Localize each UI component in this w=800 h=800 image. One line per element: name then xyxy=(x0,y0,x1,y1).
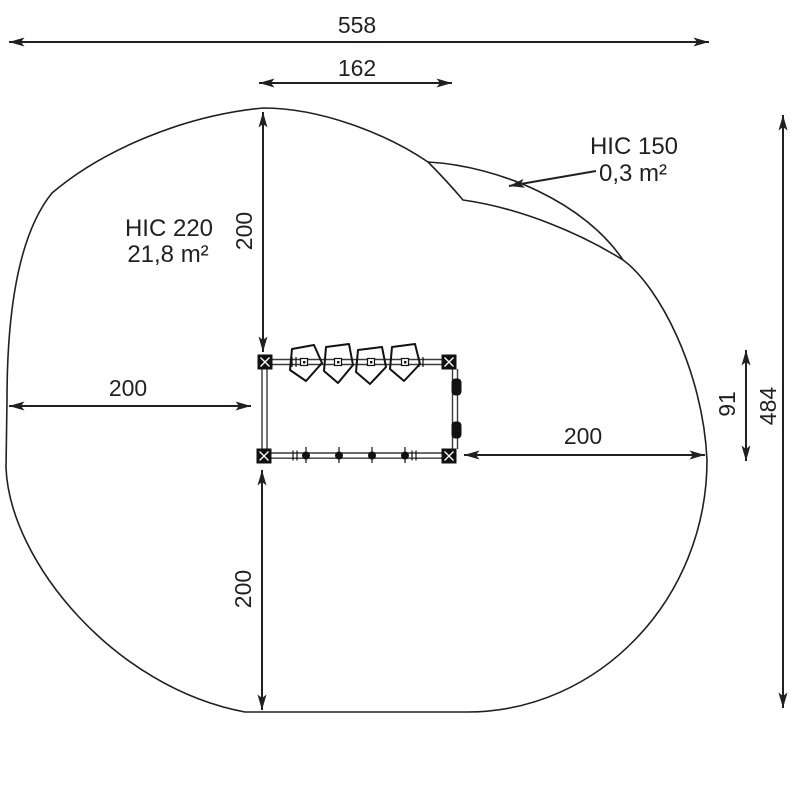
dimension-bottom-clearance: 200 xyxy=(230,470,262,710)
dimension-label: 162 xyxy=(338,55,376,81)
post xyxy=(442,355,457,370)
dimension-label: 200 xyxy=(230,570,256,608)
hic220-title: HIC 220 xyxy=(125,215,213,242)
dimension-label: 91 xyxy=(714,391,740,417)
hic150-area: 0,3 m² xyxy=(599,160,667,187)
safety-zone-drawing: 558 162 200 200 200 200 91 484 xyxy=(0,0,800,800)
dimension-left-clearance: 200 xyxy=(9,375,251,406)
hic150-title: HIC 150 xyxy=(590,133,678,160)
hic150-leader-arrow xyxy=(509,171,596,186)
dimension-label: 558 xyxy=(338,12,376,38)
post xyxy=(257,449,272,464)
safety-zone-outline xyxy=(6,108,707,712)
dimension-equipment-depth: 91 xyxy=(714,350,746,461)
dimension-total-width: 558 xyxy=(9,12,709,42)
diagram-canvas: 558 162 200 200 200 200 91 484 xyxy=(0,0,800,800)
dimension-top-clearance: 200 xyxy=(231,112,263,352)
dimension-total-height: 484 xyxy=(755,115,783,708)
dimension-label: 200 xyxy=(564,423,602,449)
hic220-zone-outline xyxy=(6,108,707,712)
post xyxy=(442,449,457,464)
step-knobs xyxy=(302,447,409,463)
zone-labels: HIC 220 21,8 m² HIC 150 0,3 m² xyxy=(125,133,678,268)
dimension-label: 200 xyxy=(109,375,147,401)
hic220-area: 21,8 m² xyxy=(127,241,208,268)
dimension-right-clearance: 200 xyxy=(464,423,705,455)
dimension-label: 484 xyxy=(755,387,781,426)
hic150-bump-arc xyxy=(428,162,623,260)
equipment-plan xyxy=(257,344,462,464)
dimensions: 558 162 200 200 200 200 91 484 xyxy=(9,12,783,710)
post xyxy=(258,355,273,370)
hic150-label: HIC 150 0,3 m² xyxy=(509,133,678,187)
hic220-label: HIC 220 21,8 m² xyxy=(125,215,213,268)
dimension-upper-inner-width: 162 xyxy=(259,55,452,83)
dimension-label: 200 xyxy=(231,212,257,250)
